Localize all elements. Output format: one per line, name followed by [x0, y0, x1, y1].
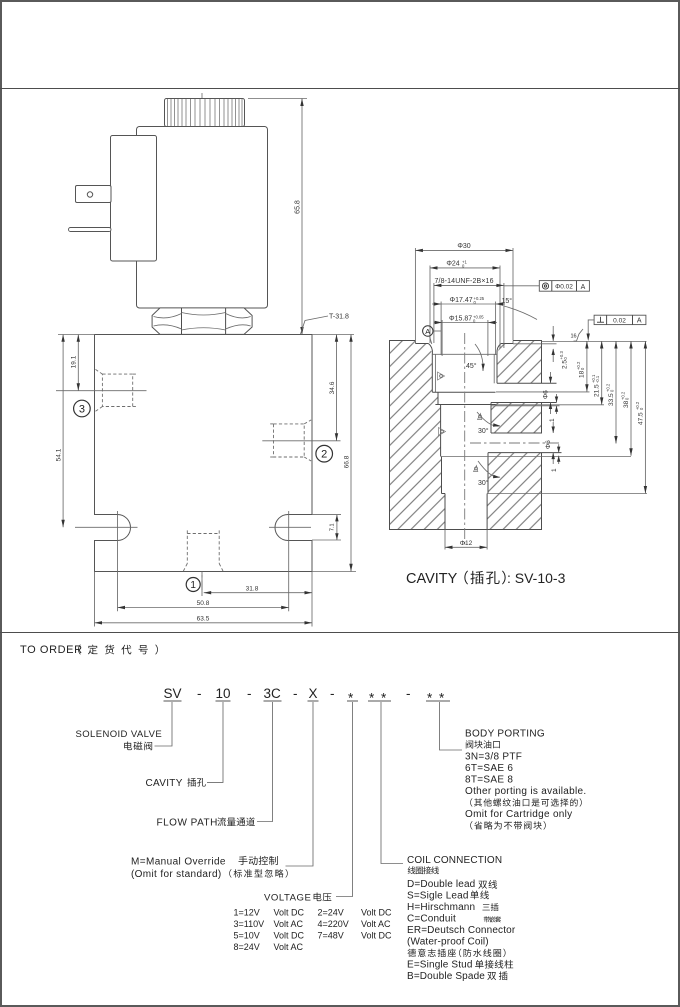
svg-text:1: 1 — [551, 468, 558, 472]
svg-text:B=Double Spade: B=Double Spade — [407, 971, 485, 982]
svg-text:30°: 30° — [478, 479, 489, 487]
svg-text:7.1: 7.1 — [330, 523, 336, 531]
svg-text:A: A — [581, 284, 586, 291]
svg-text:Omit for Cartridge only: Omit for Cartridge only — [465, 809, 573, 820]
svg-text:Φ30: Φ30 — [457, 243, 470, 250]
svg-text:-: - — [197, 686, 202, 701]
svg-text:M=Manual Override: M=Manual Override — [131, 856, 226, 867]
svg-text:1=12V: 1=12V — [234, 908, 260, 918]
svg-text:E=Single Stud: E=Single Stud — [407, 960, 473, 971]
svg-text:3=110V: 3=110V — [234, 919, 265, 929]
svg-text:SOLENOID VALVE: SOLENOID VALVE — [76, 729, 163, 740]
svg-text:21.5: 21.5 — [594, 384, 601, 397]
svg-text:Volt DC: Volt DC — [361, 908, 392, 918]
svg-text:H=Hirschmann: H=Hirschmann — [407, 902, 475, 913]
svg-text:D=Double lead: D=Double lead — [407, 879, 475, 890]
svg-text:47.5: 47.5 — [637, 412, 644, 425]
svg-text:7=48V: 7=48V — [318, 931, 344, 941]
svg-text:31.8: 31.8 — [246, 585, 259, 592]
svg-text:-: - — [247, 686, 252, 701]
svg-text:3N=3/8 PTF: 3N=3/8 PTF — [465, 752, 522, 763]
svg-text:63.5: 63.5 — [197, 615, 210, 622]
svg-text:8T=SAE 8: 8T=SAE 8 — [465, 775, 513, 786]
svg-text:CAVITY: CAVITY — [146, 778, 183, 789]
svg-text:Φ6: Φ6 — [545, 440, 552, 449]
svg-text:TO ORDER: TO ORDER — [20, 644, 83, 656]
svg-text:4=220V: 4=220V — [318, 919, 349, 929]
svg-text:VOLTAGE: VOLTAGE — [264, 893, 311, 904]
svg-text:18: 18 — [579, 370, 586, 378]
svg-text:Φ15.87: Φ15.87 — [449, 315, 472, 322]
svg-text:(Water-proof Coil): (Water-proof Coil) — [407, 937, 489, 948]
svg-text:-: - — [406, 686, 411, 701]
svg-text:50.8: 50.8 — [197, 600, 210, 607]
svg-text:(Omit for standard): (Omit for standard) — [131, 869, 222, 880]
svg-text:2.5: 2.5 — [562, 360, 569, 369]
svg-text:ER=Deutsch Connector: ER=Deutsch Connector — [407, 925, 516, 936]
svg-text:Φ17.47: Φ17.47 — [450, 297, 473, 304]
svg-text:66.8: 66.8 — [343, 455, 350, 468]
svg-text:8=24V: 8=24V — [234, 942, 260, 952]
svg-text:Volt DC: Volt DC — [274, 931, 305, 941]
svg-text:6T=SAE 6: 6T=SAE 6 — [465, 763, 513, 774]
svg-text:Volt DC: Volt DC — [361, 931, 392, 941]
svg-text:Φ24: Φ24 — [446, 260, 459, 267]
svg-text:3: 3 — [79, 404, 85, 416]
svg-text:Φ12: Φ12 — [460, 540, 473, 547]
svg-text:0.02: 0.02 — [613, 317, 626, 324]
svg-text:A: A — [425, 327, 430, 336]
svg-text:FLOW PATH: FLOW PATH — [157, 817, 218, 828]
svg-text:38: 38 — [623, 400, 630, 408]
svg-text:54.1: 54.1 — [56, 448, 63, 461]
svg-text:COIL CONNECTION: COIL CONNECTION — [407, 855, 502, 866]
svg-text:33.5: 33.5 — [608, 393, 615, 406]
svg-text:30°: 30° — [478, 427, 489, 435]
svg-text:*: * — [381, 691, 387, 706]
svg-text:*: * — [348, 691, 354, 706]
svg-text:SV: SV — [164, 686, 182, 701]
svg-text:T-31.8: T-31.8 — [329, 314, 349, 321]
svg-text:15°: 15° — [502, 297, 513, 305]
svg-text:CAVITY: CAVITY — [406, 571, 458, 587]
svg-text:-: - — [293, 686, 298, 701]
svg-text:Volt AC: Volt AC — [274, 942, 304, 952]
svg-text:7/8-14UNF-2B×16: 7/8-14UNF-2B×16 — [435, 278, 494, 285]
svg-text:10: 10 — [216, 686, 231, 701]
svg-text:45°: 45° — [466, 362, 477, 370]
svg-text:: SV-10-3: : SV-10-3 — [507, 570, 566, 586]
svg-text:*: * — [427, 691, 433, 706]
svg-text:-0.1: -0.1 — [595, 375, 600, 383]
svg-text:19.1: 19.1 — [71, 355, 78, 368]
svg-text:2: 2 — [321, 449, 327, 461]
svg-text:BODY PORTING: BODY PORTING — [465, 729, 545, 740]
svg-text:Volt AC: Volt AC — [274, 919, 304, 929]
svg-text:Volt AC: Volt AC — [361, 919, 391, 929]
svg-text:A: A — [637, 318, 642, 325]
svg-text:34.6: 34.6 — [329, 381, 336, 394]
svg-text:-: - — [330, 686, 335, 701]
svg-text:1: 1 — [549, 418, 556, 422]
svg-text:Φ6: Φ6 — [543, 390, 550, 399]
svg-text:Other porting is available.: Other porting is available. — [465, 786, 587, 797]
svg-text:*: * — [369, 691, 375, 706]
svg-text:2=24V: 2=24V — [318, 908, 344, 918]
svg-text:16: 16 — [571, 334, 577, 340]
svg-text:C=Conduit: C=Conduit — [407, 914, 456, 925]
svg-text:5=10V: 5=10V — [234, 931, 260, 941]
svg-text:S=Sigle Lead: S=Sigle Lead — [407, 891, 469, 902]
svg-text:X: X — [309, 686, 318, 701]
svg-text:Φ0.02: Φ0.02 — [555, 284, 573, 291]
svg-text:65.8: 65.8 — [295, 200, 302, 214]
svg-text:Volt DC: Volt DC — [274, 908, 305, 918]
svg-text:1: 1 — [190, 580, 196, 591]
svg-text:3C: 3C — [264, 686, 282, 701]
